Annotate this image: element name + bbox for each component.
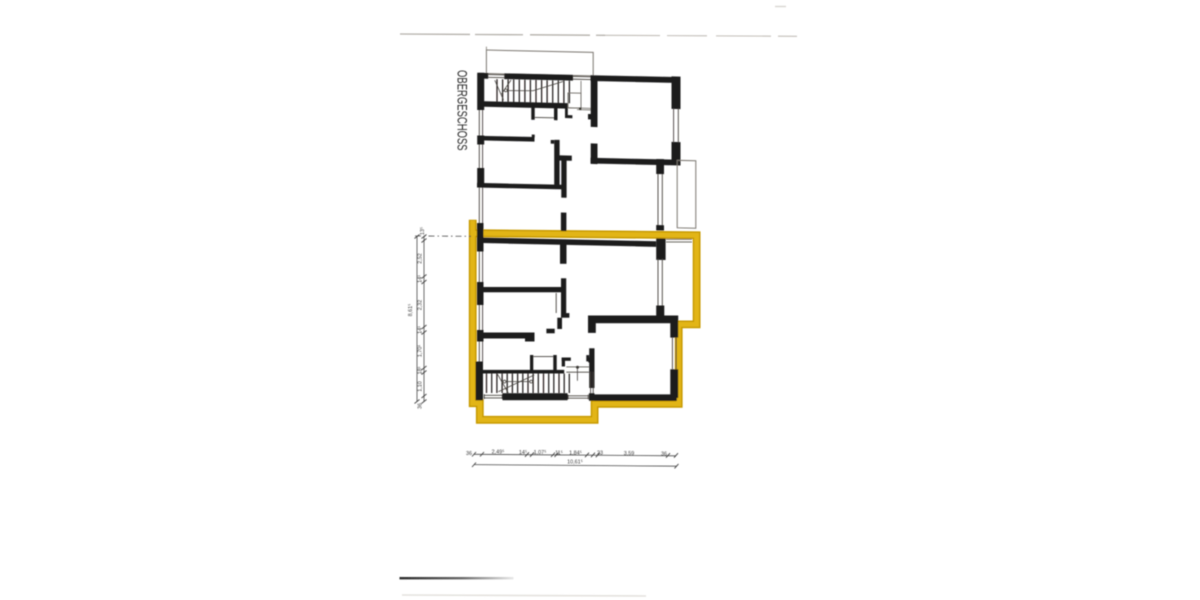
svg-text:1,10: 1,10 [418,381,424,392]
svg-text:36: 36 [418,403,424,409]
svg-text:36: 36 [661,451,667,457]
svg-text:2,32: 2,32 [418,300,424,311]
svg-text:OBERGESCHOSS: OBERGESCHOSS [454,70,469,151]
svg-text:10,61⁵: 10,61⁵ [567,459,583,465]
svg-text:13⁵: 13⁵ [420,227,426,235]
svg-text:2,49⁵: 2,49⁵ [492,450,505,456]
svg-text:14¹: 14¹ [418,275,424,283]
svg-text:1,84⁵: 1,84⁵ [569,451,582,457]
svg-text:18¹: 18¹ [418,366,424,374]
svg-text:14¹: 14¹ [418,326,424,334]
svg-text:3,59: 3,59 [624,451,635,457]
svg-text:1,07⁵: 1,07⁵ [534,450,547,456]
svg-text:8,61⁵: 8,61⁵ [408,304,414,317]
svg-text:11⁵: 11⁵ [555,450,563,456]
svg-text:1,70¹: 1,70¹ [418,345,424,357]
svg-text:23: 23 [597,451,603,457]
svg-text:14⁵: 14⁵ [519,450,527,456]
svg-text:36: 36 [466,451,472,457]
svg-text:2,52: 2,52 [418,253,424,264]
